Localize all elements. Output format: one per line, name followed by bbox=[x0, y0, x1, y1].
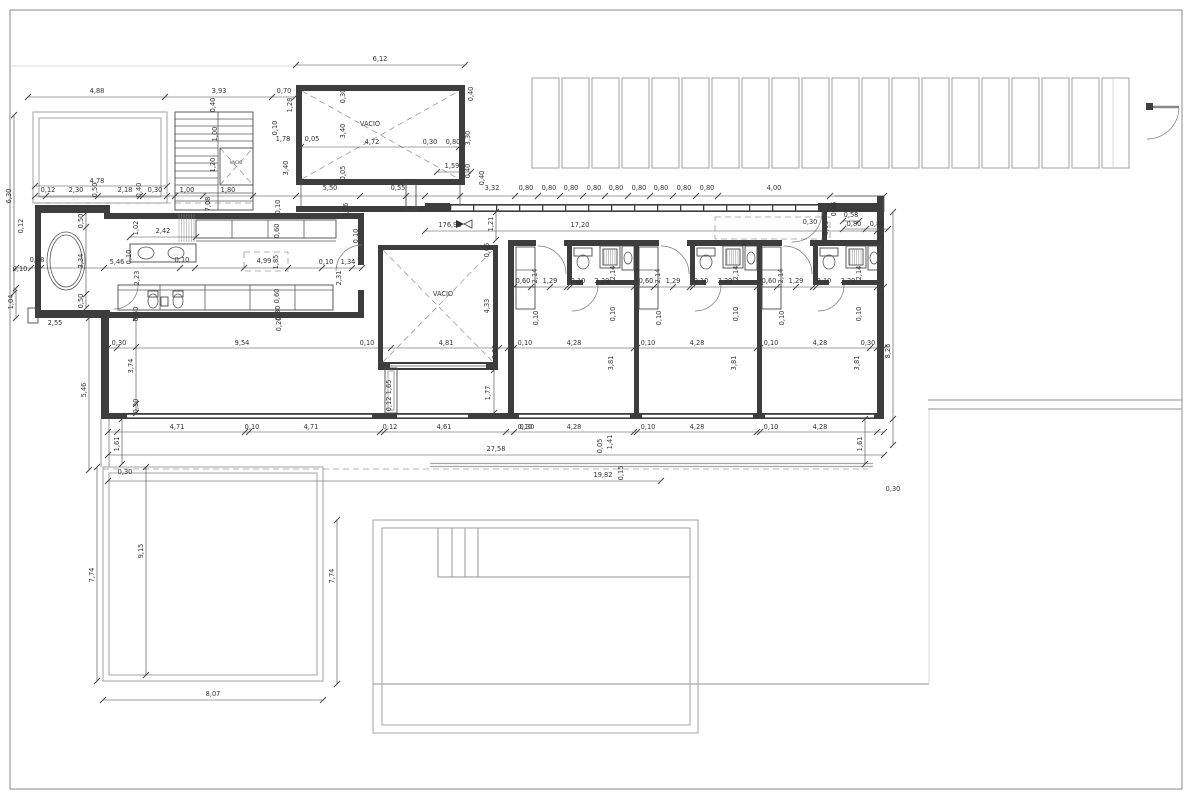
dimension-label: 3,34 bbox=[77, 254, 85, 269]
dimension-label: 6,12 bbox=[373, 55, 388, 63]
dimension-label: 0,30 bbox=[132, 399, 140, 414]
dimension-label: 2,16 bbox=[342, 203, 350, 218]
dimension-label: 2,29 bbox=[718, 277, 733, 285]
dimension-label: 3,74 bbox=[127, 359, 135, 374]
dimension-label: 1,29 bbox=[666, 277, 681, 285]
dimension-label: 19,82 bbox=[594, 471, 613, 479]
dimension-label: 1,80 bbox=[221, 186, 236, 194]
dimension-label: 8,26 bbox=[884, 344, 892, 359]
dimension-label: 4,88 bbox=[90, 87, 105, 95]
dimension-label: 0,10 bbox=[694, 277, 709, 285]
dimension-label: 0,10 bbox=[518, 339, 533, 347]
dimension-label: 0,30 bbox=[112, 339, 127, 347]
floor-plan-page: 4,883,930,706,120,401,280,101,001,20VACI… bbox=[0, 0, 1190, 800]
dimension-label: 2,14 bbox=[609, 266, 617, 281]
dimension-label: 0,10 bbox=[175, 256, 190, 264]
dimension-label: 0,10 bbox=[532, 311, 540, 326]
dimension-label: 0,48 bbox=[30, 256, 45, 264]
dimension-label: 8,07 bbox=[206, 690, 221, 698]
dimension-label: 0,70 bbox=[277, 87, 292, 95]
dimension-label: 0,10 bbox=[855, 307, 863, 322]
dimension-label: 0,30 bbox=[861, 339, 876, 347]
dimension-label: 5,46 bbox=[110, 258, 125, 266]
dimension-label: 0,10 bbox=[655, 311, 663, 326]
dimension-label: 3,32 bbox=[485, 184, 500, 192]
dimension-label: 3,81 bbox=[607, 356, 615, 371]
dimension-label: 0,30 bbox=[886, 485, 901, 493]
dimension-label: 2,29 bbox=[841, 277, 856, 285]
dimension-label: 2,55 bbox=[48, 319, 63, 327]
dimension-label: 4,61 bbox=[437, 423, 452, 431]
dimension-label: 9,15 bbox=[137, 544, 145, 559]
dimension-label: VACIO bbox=[230, 160, 244, 165]
dimension-label: 1,20 bbox=[209, 158, 217, 173]
dimension-label: 1,21 bbox=[487, 217, 495, 232]
dimension-label: 0,10 bbox=[319, 258, 334, 266]
dimension-label: 4,28 bbox=[813, 423, 828, 431]
dimension-label: VACIO bbox=[433, 290, 453, 298]
dimension-label: 0,40 bbox=[464, 164, 472, 179]
dimension-label: 1,59 bbox=[445, 162, 460, 170]
dimension-label: 0,10 bbox=[817, 277, 832, 285]
dimension-label: 1,61 bbox=[856, 437, 864, 452]
dimension-label: 1,61 bbox=[113, 437, 121, 452]
dimension-label: 0,30 bbox=[148, 186, 163, 194]
dimension-label: 0,60 bbox=[762, 277, 777, 285]
dimension-label: 0,58 bbox=[844, 211, 859, 219]
dimension-label: 2,18 bbox=[118, 186, 133, 194]
dimension-label: 0,10 bbox=[360, 339, 375, 347]
dimension-label: 0,10 bbox=[271, 121, 279, 136]
dimension-label: 0,10 bbox=[764, 339, 779, 347]
dimension-label: 0,12 bbox=[41, 186, 56, 194]
dimension-label: 4,00 bbox=[767, 184, 782, 192]
dimension-label: 0,40 bbox=[135, 183, 143, 198]
dimension-label: 5,50 bbox=[323, 184, 338, 192]
dimension-label: 0,10 bbox=[245, 423, 260, 431]
dimension-label: 7,74 bbox=[88, 568, 96, 583]
dimension-label: 0,10 bbox=[125, 250, 133, 265]
dimension-label: 0,20 bbox=[275, 317, 283, 332]
dimension-label: 0,10 bbox=[732, 307, 740, 322]
dimension-label: 4,28 bbox=[690, 423, 705, 431]
dimension-label: 0,60 bbox=[273, 224, 281, 239]
dimension-label: 0,10 bbox=[518, 423, 533, 431]
dimension-label: 0,10 bbox=[352, 229, 360, 244]
dimension-label: 7,74 bbox=[328, 569, 336, 584]
dimension-label: 0,60 bbox=[273, 289, 281, 304]
dimension-label: 1,28 bbox=[286, 98, 294, 113]
dimension-label: 0,80 bbox=[632, 184, 647, 192]
dimension-label: 2,30 bbox=[69, 186, 84, 194]
dimension-label: 4,28 bbox=[690, 339, 705, 347]
dimension-label: 6,30 bbox=[5, 189, 13, 204]
dimension-label: 1,04 bbox=[7, 295, 15, 310]
dimension-label: 0,12 bbox=[17, 219, 25, 234]
dimension-label: 0,56 bbox=[830, 202, 838, 217]
dimension-label: 0,40 bbox=[467, 87, 475, 102]
dimension-label: 27,58 bbox=[487, 445, 506, 453]
dimension-label: 0,12 bbox=[385, 397, 393, 412]
dimension-label: 3,81 bbox=[853, 356, 861, 371]
dimension-label: 4,28 bbox=[567, 423, 582, 431]
dimension-label: 0,05 bbox=[822, 221, 830, 236]
dimension-label: 1,02 bbox=[132, 221, 140, 236]
dimension-label: 0,30 bbox=[118, 468, 133, 476]
dimension-label: 0,80 bbox=[587, 184, 602, 192]
dimension-label: 0,10 bbox=[274, 200, 282, 215]
dimension-label: 0,05 bbox=[305, 135, 320, 143]
dimension-label: 4,81 bbox=[439, 339, 454, 347]
dimension-label: 2,31 bbox=[335, 271, 343, 286]
dimension-label: 4,28 bbox=[567, 339, 582, 347]
dimension-label: 0,80 bbox=[564, 184, 579, 192]
dimension-label: 0,12 bbox=[383, 423, 398, 431]
dimension-label: 4,99 bbox=[257, 257, 272, 265]
dimension-label: 3,40 bbox=[282, 161, 290, 176]
dimension-label: 0,10 bbox=[609, 307, 617, 322]
dimension-label: 0,50 bbox=[77, 214, 85, 229]
dimension-label: 0,40 bbox=[209, 98, 217, 113]
dimension-label: 0,50 bbox=[91, 183, 99, 198]
dimension-label: 2,29 bbox=[595, 277, 610, 285]
dimension-label: 0,80 bbox=[446, 138, 461, 146]
dimension-label: 0,80 bbox=[654, 184, 669, 192]
dimension-label: 0,80 bbox=[870, 220, 885, 228]
dimension-label: 0,10 bbox=[764, 423, 779, 431]
dimension-label: 0,80 bbox=[847, 220, 862, 228]
floor-plan-canvas: 4,883,930,706,120,401,280,101,001,20VACI… bbox=[0, 0, 1190, 800]
level-marker bbox=[456, 220, 472, 228]
dimension-label: 1,77 bbox=[484, 386, 492, 401]
dimension-label: 0,50 bbox=[77, 294, 85, 309]
dimension-label: 7,08 bbox=[204, 197, 212, 212]
dimension-label: 0,10 bbox=[641, 423, 656, 431]
dimension-label: 4,72 bbox=[365, 138, 380, 146]
dimension-label: 2,14 bbox=[654, 269, 662, 284]
dimension-label: 2,23 bbox=[133, 271, 141, 286]
dimension-label: VACIO bbox=[360, 120, 380, 128]
lower-level-layer bbox=[33, 78, 1129, 733]
dimension-label: 3,30 bbox=[464, 131, 472, 146]
dimension-label: 4,71 bbox=[304, 423, 319, 431]
dimension-label: 3,81 bbox=[730, 356, 738, 371]
dimension-label: 1,85 bbox=[272, 255, 280, 270]
dimension-label: 1,00 bbox=[180, 186, 195, 194]
dimension-label: 4,28 bbox=[813, 339, 828, 347]
dimension-label: 0,80 bbox=[609, 184, 624, 192]
dimension-label: 2,14 bbox=[777, 269, 785, 284]
dimension-label: 0,10 bbox=[641, 339, 656, 347]
dimension-label: 0,80 bbox=[677, 184, 692, 192]
dimension-label: 0,10 bbox=[13, 265, 28, 273]
dimension-label: 3,40 bbox=[339, 124, 347, 139]
dimension-label: 0,60 bbox=[516, 277, 531, 285]
dimension-label: 4,33 bbox=[483, 299, 491, 314]
dimension-label: 0,50 bbox=[132, 307, 140, 322]
dimension-label: 0,35 bbox=[491, 345, 499, 360]
dimension-label: 2,42 bbox=[156, 227, 171, 235]
dimension-label: 0,10 bbox=[571, 277, 586, 285]
dimension-label: 1,78 bbox=[276, 135, 291, 143]
dimension-label: 1,34 bbox=[341, 258, 356, 266]
dimension-label: 2,14 bbox=[531, 269, 539, 284]
dimension-label: 1,29 bbox=[789, 277, 804, 285]
dimension-label: 0,15 bbox=[617, 466, 625, 481]
dimension-label: 0,80 bbox=[700, 184, 715, 192]
dimension-label: 0,30 bbox=[423, 138, 438, 146]
dimension-label: 0,05 bbox=[483, 243, 491, 258]
dimension-label: 0,05 bbox=[596, 439, 604, 454]
dimension-label: 1,41 bbox=[606, 435, 614, 450]
dimension-label: 1,65 bbox=[385, 380, 393, 395]
dimension-label: 2,14 bbox=[732, 266, 740, 281]
dimension-label: 9,54 bbox=[235, 339, 250, 347]
dimension-label: 17,20 bbox=[571, 221, 590, 229]
dimension-label: 1,29 bbox=[543, 277, 558, 285]
dimension-label: 1,00 bbox=[211, 127, 219, 142]
dimension-label: 0,05 bbox=[339, 166, 347, 181]
dimension-label: 0,55 bbox=[391, 184, 406, 192]
dimension-label: 0,30 bbox=[339, 89, 347, 104]
dimension-label: 2,14 bbox=[855, 266, 863, 281]
dimension-label: 5,46 bbox=[80, 383, 88, 398]
dimension-label: 0,80 bbox=[519, 184, 534, 192]
dimension-label: 4,71 bbox=[170, 423, 185, 431]
dimension-label: 3,93 bbox=[212, 87, 227, 95]
dimension-label: 0,60 bbox=[639, 277, 654, 285]
dimension-label: 0,30 bbox=[803, 218, 818, 226]
dimension-label: 0,10 bbox=[778, 311, 786, 326]
dimension-label: 0,80 bbox=[542, 184, 557, 192]
